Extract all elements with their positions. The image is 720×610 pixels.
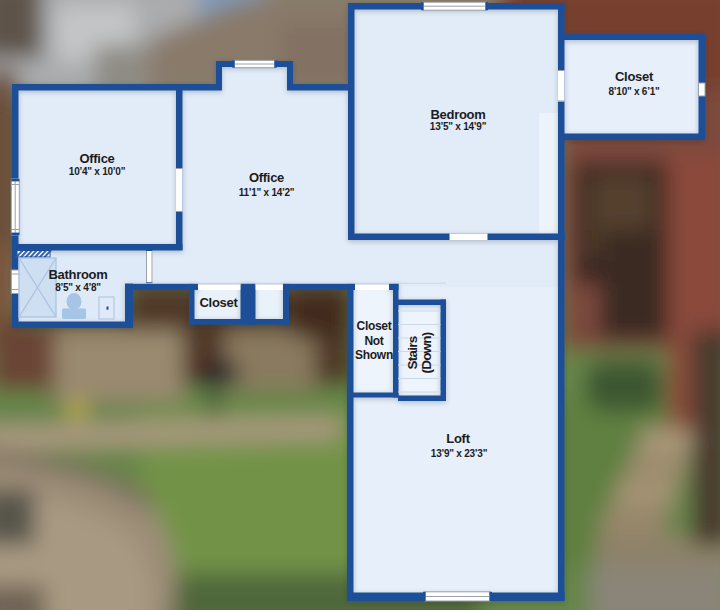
svg-text:Closet: Closet bbox=[615, 69, 654, 84]
svg-text:Not: Not bbox=[364, 334, 383, 348]
svg-text:Office: Office bbox=[249, 170, 284, 185]
svg-text:(Down): (Down) bbox=[419, 332, 434, 373]
svg-text:Bedroom: Bedroom bbox=[431, 107, 486, 122]
svg-text:13’9" x 23’3": 13’9" x 23’3" bbox=[431, 448, 488, 459]
svg-text:10’4" x 10’0": 10’4" x 10’0" bbox=[69, 166, 126, 177]
svg-text:13’5" x 14’9": 13’5" x 14’9" bbox=[430, 121, 487, 132]
svg-text:Shown: Shown bbox=[355, 348, 393, 362]
svg-text:Closet: Closet bbox=[200, 295, 239, 310]
svg-text:Loft: Loft bbox=[446, 431, 470, 446]
svg-text:Office: Office bbox=[79, 151, 114, 166]
svg-text:Closet: Closet bbox=[357, 319, 392, 333]
svg-text:11’1" x 14’2": 11’1" x 14’2" bbox=[239, 187, 295, 198]
svg-text:8’5" x 4’8": 8’5" x 4’8" bbox=[55, 282, 101, 293]
svg-text:8’10" x 6’1": 8’10" x 6’1" bbox=[609, 86, 660, 97]
svg-text:Bathroom: Bathroom bbox=[49, 267, 108, 282]
